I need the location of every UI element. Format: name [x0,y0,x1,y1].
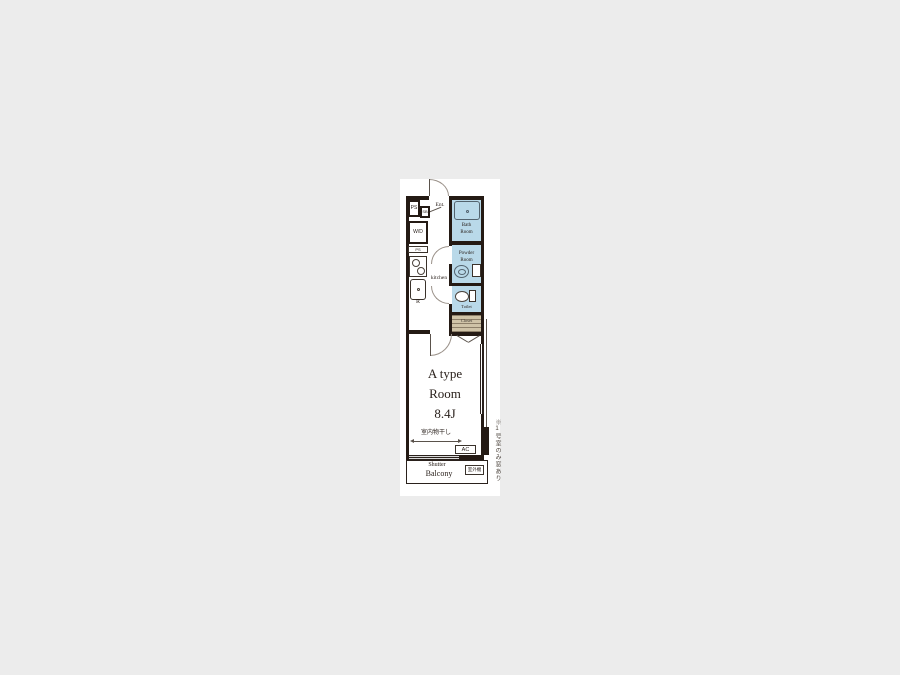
balcony-area: Shutter Balcony 室外機 [406,460,488,484]
refrigerator-label: R [408,299,428,306]
entrance-door-leaf [429,179,430,196]
room-door-leaf [430,334,431,356]
bath-room-label-line2: Room [452,229,481,236]
shoe-box-label: SB [422,210,428,214]
arrow-right-icon [458,439,462,443]
washer-dryer-label: W/D [410,230,426,236]
bath-room-label: Bath Room [452,222,481,236]
entrance-door-arc [429,179,449,196]
wall-toilet-closet [449,312,484,315]
toilet-bowl-icon [455,291,469,302]
floorplan-sheet: PS SB Ent. W/D PS kitchen R Bath Room [400,179,500,496]
bath-room-label-line1: Bath [452,222,481,229]
pipe-space-top-label: PS [410,206,418,212]
air-conditioner-box: AC [455,445,476,454]
main-room-name: Room [409,384,481,404]
entrance-label: Ent. [431,202,449,208]
sink-drain-icon [417,288,420,291]
bathtub-icon [454,201,480,220]
powder-room-label: Powder Room [452,250,481,264]
pipe-space-mid-box: PS [408,246,428,253]
pipe-space-top-box: PS [408,200,420,217]
side-note-vertical: ※1号室のみ窓あり [489,419,500,489]
kitchen-label: kitchen [428,275,450,281]
stove-burner-icon-2 [417,267,425,275]
washbasin-icon [454,265,469,278]
kitchen-sink [410,279,426,300]
air-conditioner-label: AC [456,447,475,453]
balcony-window-midline [409,457,459,458]
powder-room-label-line2: Room [452,257,481,264]
toilet-label: Toilet [452,305,481,310]
right-window-midline [482,344,483,414]
closet-label: Closet [452,319,481,324]
wall-room-top-left [406,330,430,334]
bathtub-drain-icon [466,210,469,213]
indoor-drying-pole-line [412,441,460,442]
balcony-label: Balcony [415,470,463,479]
wall-right-upper [481,196,484,344]
page-background: PS SB Ent. W/D PS kitchen R Bath Room [0,0,900,675]
shoe-box: SB [420,206,430,218]
closet-door-line-right [468,335,480,343]
main-room-type: A type [409,364,481,384]
outdoor-unit-box: 室外機 [465,465,484,475]
powder-door-arc [431,246,449,264]
washbasin-bowl-icon [458,269,466,275]
toilet-tank-icon [469,290,476,302]
closet-door-line-left [456,335,468,343]
powder-room-label-line1: Powder [452,250,481,257]
adjacent-wall-line [486,319,487,427]
outdoor-unit-label: 室外機 [466,468,483,473]
room-door-arc [430,334,452,356]
powder-side-box [472,264,481,277]
wall-powder-toilet [449,283,484,286]
toilet-door-arc [431,286,449,304]
stove-counter [409,256,427,277]
main-room-size: 8.4J [409,404,481,424]
washer-dryer-box: W/D [408,221,428,244]
indoor-drying-label: 室内物干し [414,430,458,437]
pipe-space-mid-label: PS [409,248,427,252]
arrow-left-icon [410,439,414,443]
main-room-label: A type Room 8.4J [409,364,481,424]
wall-top-right [449,196,484,200]
shutter-label: Shutter [417,462,457,469]
stove-burner-icon [412,259,420,267]
wall-bath-powder [449,241,484,245]
